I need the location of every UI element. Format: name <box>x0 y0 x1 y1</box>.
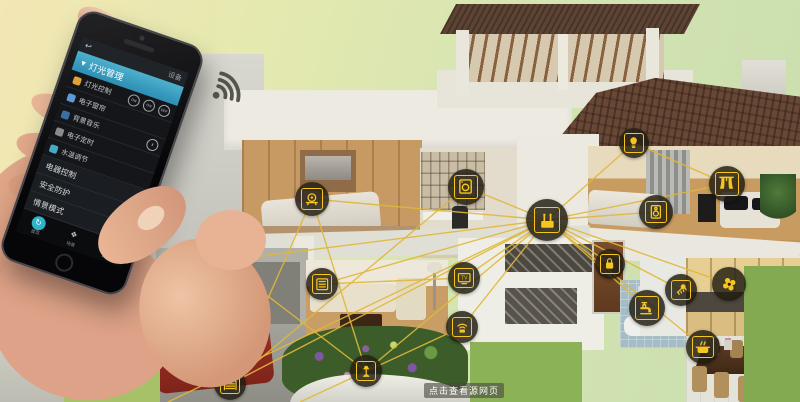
nav-item-首页[interactable]: ↻首页 <box>28 214 48 237</box>
device-icon-cooker <box>686 330 720 364</box>
svg-text:TV: TV <box>461 275 468 281</box>
toggle-button[interactable]: Ⅱ <box>145 137 160 152</box>
expand-icon: ▾ <box>80 57 88 69</box>
icon-frame <box>715 172 738 195</box>
knuckle <box>196 210 266 270</box>
back-icon[interactable]: ↩ <box>84 41 93 52</box>
device-icon-tv: TV <box>448 262 480 294</box>
icon-frame <box>301 188 323 210</box>
timer-icon <box>55 126 65 136</box>
device-icon-dome-camera <box>295 182 329 216</box>
device-icon-garden-light <box>350 355 382 387</box>
device-icon-light-bulb <box>619 128 649 158</box>
icon-frame <box>692 336 714 358</box>
device-icon-fan <box>712 267 746 301</box>
icon-frame: TV <box>454 268 474 288</box>
water-icon <box>49 143 59 153</box>
nav-item-label: 首页 <box>30 229 40 236</box>
device-icon-door-lock <box>595 249 625 279</box>
device-icon-hub-router <box>526 199 568 241</box>
bulb-icon <box>72 75 82 85</box>
device-icon-curtains <box>709 166 745 202</box>
icon-frame <box>452 317 472 337</box>
icon-frame <box>645 201 667 223</box>
music-icon <box>60 109 70 119</box>
toggle-button[interactable]: ON <box>126 92 141 107</box>
icon-frame <box>600 254 619 273</box>
front-camera <box>139 35 145 41</box>
nav-item-场景[interactable]: ❖场景 <box>63 227 83 250</box>
device-icon-speaker <box>639 195 673 229</box>
smart-home-promo-image: TV 点击查看源网页 ↩ 设备 ▾ 灯光管理 灯光控制ONONOFF电子窗帘背景… <box>0 0 800 402</box>
toggle-button[interactable]: ON <box>141 98 156 113</box>
icon-frame <box>671 280 691 300</box>
icon-frame <box>624 133 643 152</box>
device-icon-shower <box>665 274 697 306</box>
nav-item-label: 场景 <box>65 242 75 249</box>
toggle-button[interactable]: OFF <box>157 103 172 118</box>
device-icon-washer <box>448 169 484 205</box>
home-button[interactable] <box>53 251 76 274</box>
icon-frame <box>635 296 658 319</box>
top-bar-right-label[interactable]: 设备 <box>167 69 183 83</box>
watermark-label[interactable]: 点击查看源网页 <box>424 383 504 398</box>
icon-frame <box>356 361 376 381</box>
icon-frame <box>534 207 561 234</box>
curtain-icon <box>66 92 76 102</box>
device-icon-keypad-panel <box>306 268 338 300</box>
device-icon-faucet <box>629 290 665 326</box>
icon-frame <box>312 274 332 294</box>
icon-frame <box>454 175 477 198</box>
device-icon-wifi-device <box>446 311 478 343</box>
